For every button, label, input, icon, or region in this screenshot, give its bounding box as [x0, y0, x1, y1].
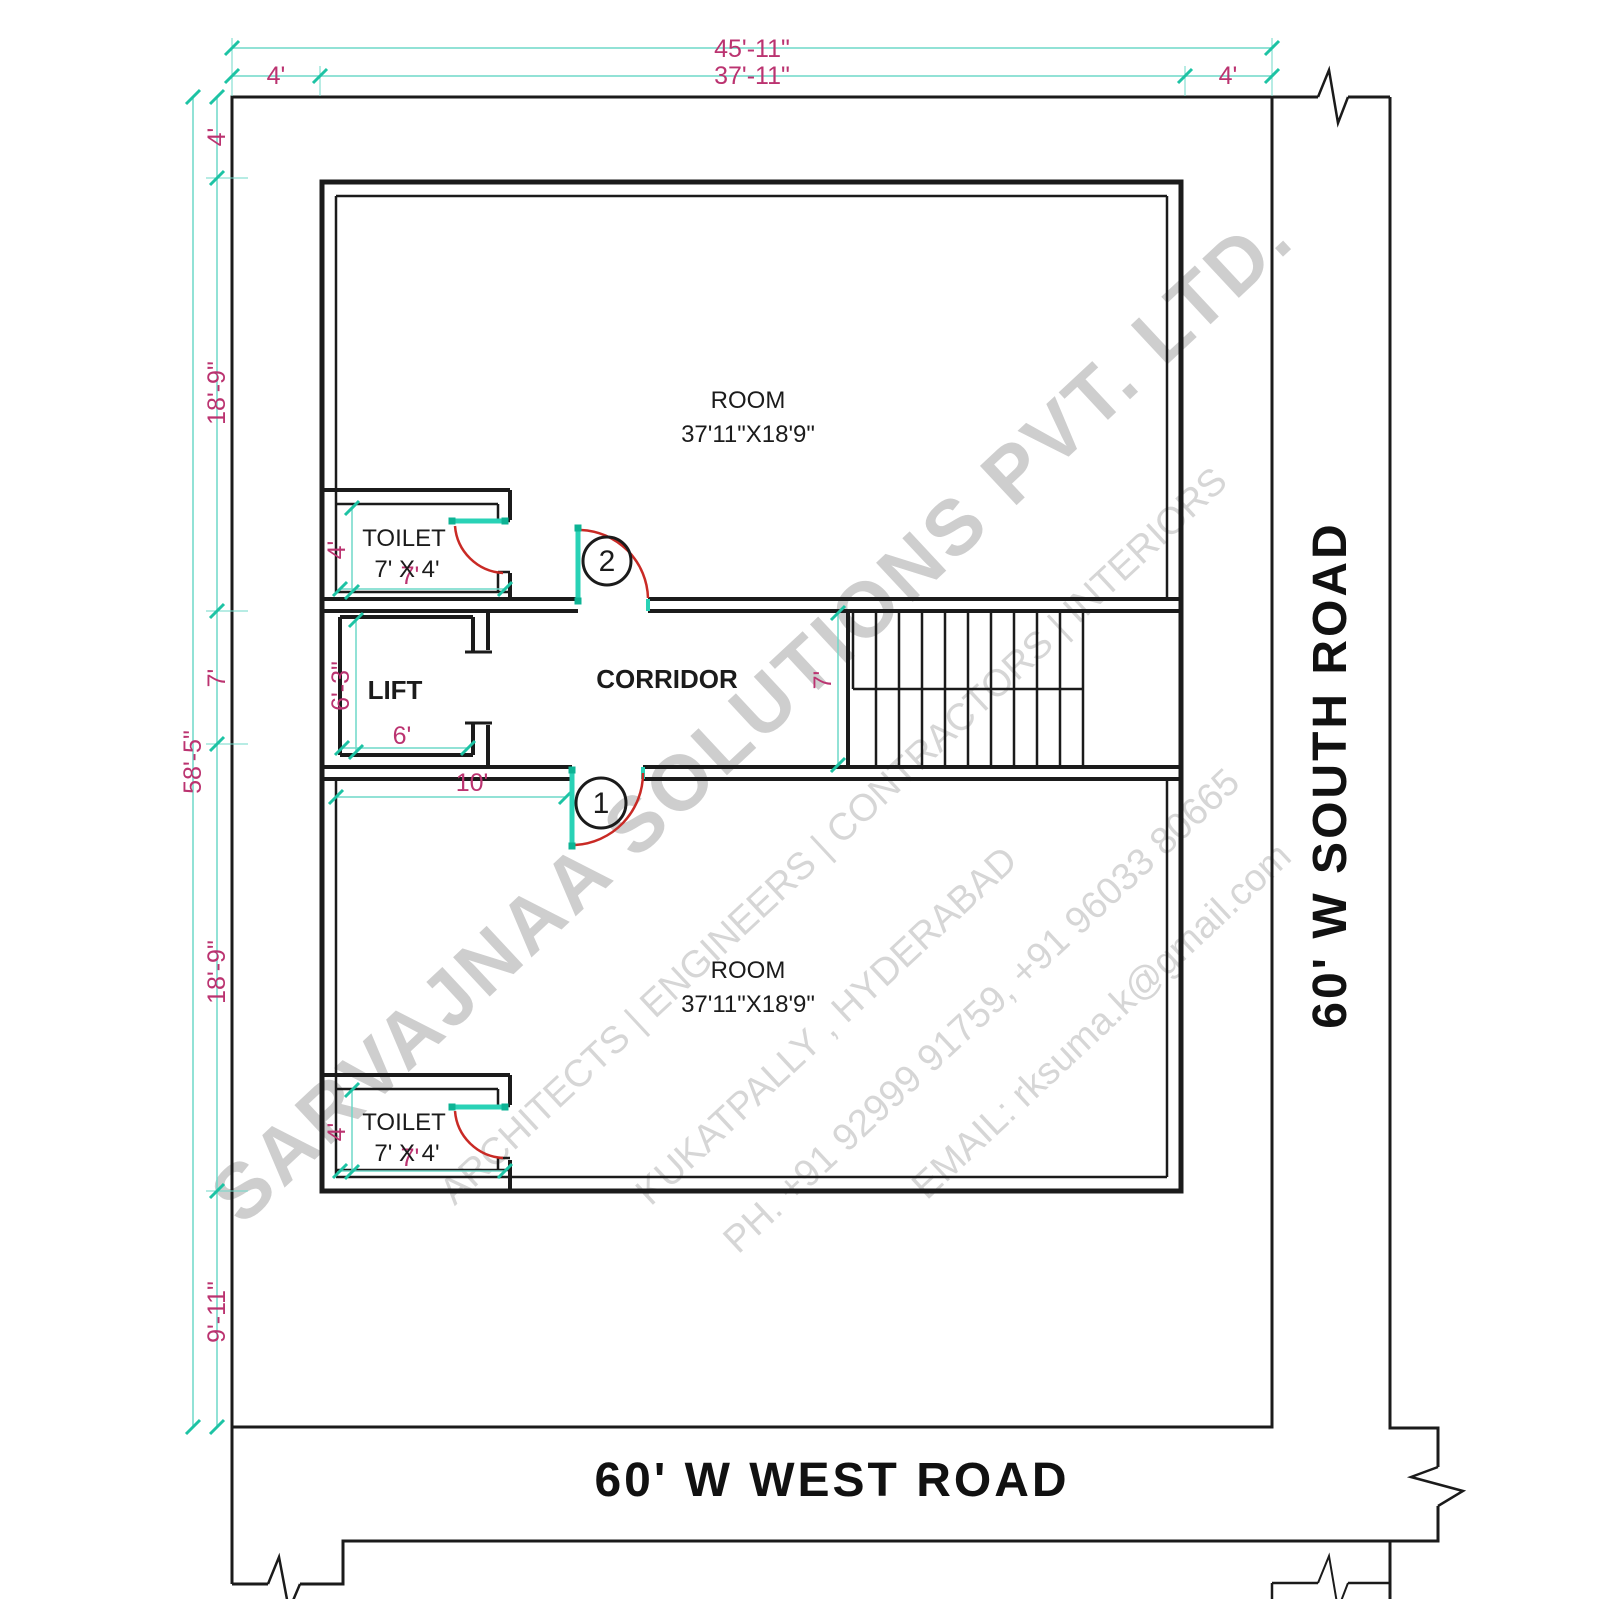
watermark-services: ARCHITECTS | ENGINEERS | CONTRACTORS | I… — [432, 460, 1235, 1213]
dim-corridor-depth: 7' — [203, 669, 231, 688]
room-top-label: ROOM — [711, 387, 786, 414]
door1-tag-number: 1 — [593, 787, 610, 820]
corridor-label: CORRIDOR — [596, 664, 738, 694]
south-road-label: 60' W SOUTH ROAD — [1304, 521, 1357, 1028]
toilet-top-door-swing — [455, 526, 503, 573]
west-road-far-edge — [232, 1541, 1390, 1584]
dim-building-width: 37'-11" — [714, 62, 790, 90]
room-bottom-label: ROOM — [711, 957, 786, 984]
floor-plan-canvas: SARVAJNAA SOLUTIONS PVT. LTD. ARCHITECTS… — [0, 0, 1599, 1599]
break-symbol-corner — [1318, 1556, 1348, 1599]
dim-toilet-top-depth: 4' — [323, 541, 351, 560]
break-symbol-south-road — [1411, 1467, 1463, 1506]
dim-plot-depth: 58'-5" — [179, 730, 207, 794]
dim-room-bottom-depth: 18'-9" — [203, 940, 231, 1004]
west-road-label: 60' W WEST ROAD — [594, 1454, 1069, 1507]
floor-plan-drawing: SARVAJNAA SOLUTIONS PVT. LTD. ARCHITECTS… — [0, 0, 1599, 1599]
break-symbol-top — [1318, 70, 1348, 123]
south-road-far-edge — [1390, 97, 1438, 1599]
dim-room-top-depth: 18'-9" — [203, 361, 231, 425]
break-symbol-west-road — [268, 1557, 300, 1599]
dim-lift-depth: 6'-3" — [327, 661, 355, 711]
dim-setback-left-top: 4' — [203, 128, 231, 147]
room-top-size: 37'11"X18'9" — [681, 421, 815, 448]
dim-toilet-bottom-depth: 4' — [323, 1123, 351, 1142]
lift-label: LIFT — [368, 675, 423, 705]
toilet-top-label: TOILET — [362, 525, 446, 552]
watermark: SARVAJNAA SOLUTIONS PVT. LTD. ARCHITECTS… — [194, 191, 1310, 1262]
dim-setback-bottom: 9'-11" — [203, 1281, 231, 1343]
toilet-bottom-label: TOILET — [362, 1109, 446, 1136]
lift-door-jambs — [465, 652, 492, 723]
dim-setback-top-right: 4' — [1219, 62, 1238, 90]
dim-door1-offset: 10' — [456, 769, 489, 797]
door2-tag-number: 2 — [599, 545, 616, 578]
toilet-top-size: 7' X 4' — [374, 556, 439, 583]
road-intersection-lines — [1272, 1583, 1390, 1599]
dim-stair-depth: 7' — [809, 671, 837, 690]
room-bottom-size: 37'11"X18'9" — [681, 991, 815, 1018]
dim-setback-top-left: 4' — [267, 62, 286, 90]
dim-lift-width: 6' — [393, 722, 412, 750]
toilet-bottom-size: 7' X 4' — [374, 1140, 439, 1167]
dim-plot-width: 45'-11" — [714, 35, 790, 63]
